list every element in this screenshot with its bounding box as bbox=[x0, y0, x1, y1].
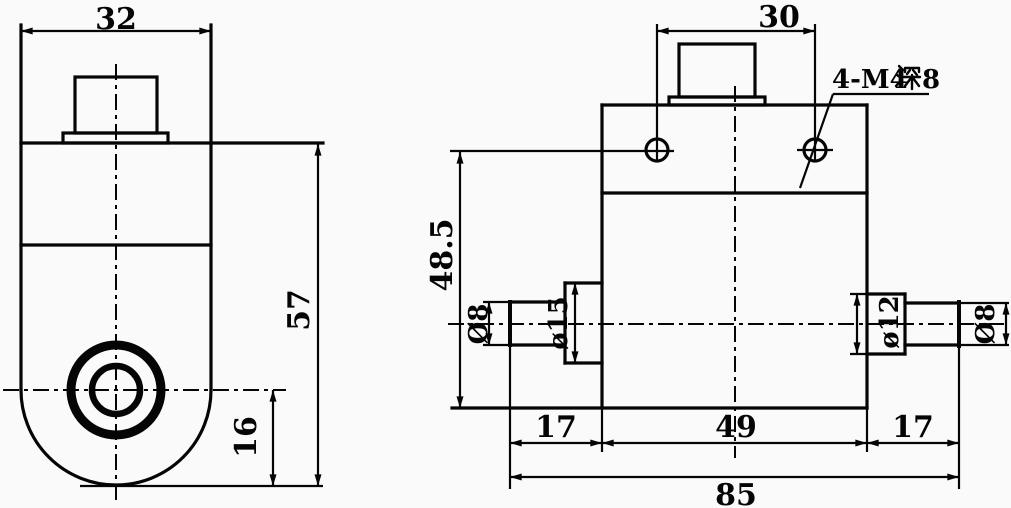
dim-label-16: 16 bbox=[229, 416, 264, 458]
dim-label-o15: ø15 bbox=[544, 296, 574, 350]
thread-note-text-pre: 4-M4 bbox=[832, 65, 908, 95]
engineering-drawing: 32 16 57 30 bbox=[0, 0, 1011, 508]
dim-label-85: 85 bbox=[715, 478, 757, 508]
dim-label-17-right: 17 bbox=[892, 410, 934, 445]
dim-label-17-left: 17 bbox=[535, 410, 577, 445]
thread-note-leader-line bbox=[800, 94, 833, 188]
tapped-holes bbox=[450, 139, 833, 161]
front-boss-flange bbox=[669, 97, 765, 105]
dim-label-30: 30 bbox=[758, 0, 800, 35]
thread-note: 4-M4 8 bbox=[800, 65, 940, 188]
dim-label-49: 49 bbox=[715, 410, 757, 445]
dim-label-o12: ø12 bbox=[875, 295, 905, 349]
right-view: 30 4-M4 8 48.5 bbox=[425, 0, 1009, 508]
dim-label-o8-right: Ø8 bbox=[971, 304, 1001, 345]
left-view: 32 16 57 bbox=[3, 2, 323, 504]
front-boss bbox=[679, 44, 755, 97]
drawing-canvas: 32 16 57 30 bbox=[0, 0, 1011, 508]
dim-label-o8-left: Ø8 bbox=[464, 304, 494, 345]
dim-label-48-5: 48.5 bbox=[425, 218, 460, 291]
thread-note-text-post: 8 bbox=[922, 65, 940, 95]
dim-label-32: 32 bbox=[95, 2, 137, 37]
dim-label-57: 57 bbox=[282, 289, 317, 331]
